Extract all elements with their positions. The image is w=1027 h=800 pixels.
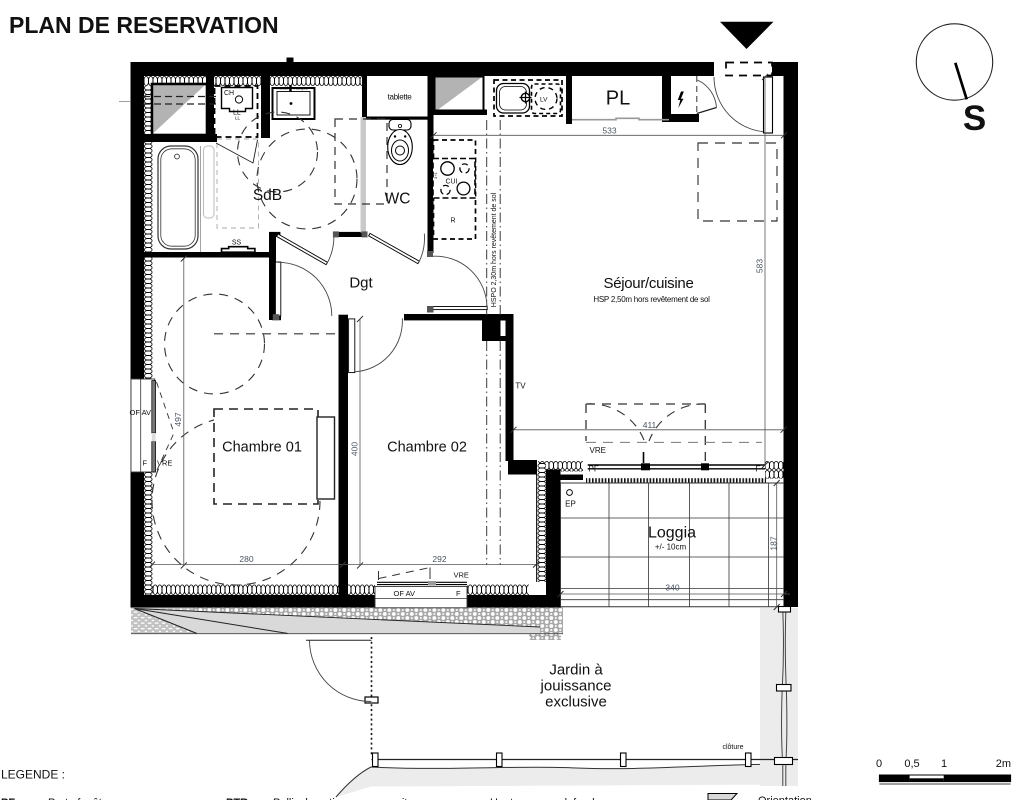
svg-text:0: 0 (876, 758, 882, 770)
svg-text:400: 400 (350, 442, 360, 456)
svg-text:VRE: VRE (590, 446, 606, 455)
svg-text:EP: EP (565, 500, 576, 509)
svg-text:Chambre 02: Chambre 02 (387, 440, 467, 456)
svg-text:WC: WC (385, 191, 411, 208)
svg-text:411: 411 (643, 420, 657, 430)
svg-text:clôture: clôture (722, 744, 743, 751)
svg-text:F: F (456, 589, 461, 598)
svg-text:Dgt: Dgt (349, 275, 373, 292)
svg-text:Séjour/cuisine: Séjour/cuisine (603, 275, 693, 292)
svg-text:PF: PF (589, 465, 599, 474)
svg-text:exclusive: exclusive (545, 694, 607, 711)
svg-text:2m: 2m (996, 758, 1011, 770)
svg-text:LV: LV (540, 97, 548, 104)
svg-text:Chambre 01: Chambre 01 (222, 440, 302, 456)
svg-text:187: 187 (769, 536, 779, 550)
svg-text:meuble+vasque: meuble+vasque (276, 86, 308, 91)
svg-text:0,5: 0,5 (904, 758, 919, 770)
svg-text:LL: LL (235, 116, 241, 121)
svg-text:Jardin à: Jardin à (549, 662, 603, 679)
svg-text:SS: SS (232, 240, 242, 247)
svg-text:jouissance: jouissance (540, 678, 612, 695)
svg-text:1: 1 (941, 758, 947, 770)
svg-text:SdB: SdB (253, 187, 282, 204)
svg-text:CH: CH (224, 90, 234, 97)
svg-text:533: 533 (602, 126, 616, 136)
svg-text:S: S (963, 99, 986, 138)
svg-text:+/- 10cm: +/- 10cm (655, 543, 687, 552)
svg-text:F: F (143, 459, 148, 468)
svg-text:OF AV: OF AV (130, 408, 152, 417)
svg-text:280: 280 (239, 554, 253, 564)
svg-text:TV: TV (515, 382, 526, 391)
svg-text:Orientation: Orientation (758, 795, 812, 800)
svg-text:R: R (451, 218, 456, 225)
svg-text:VRE: VRE (454, 571, 469, 580)
svg-text:PLAN DE RESERVATION: PLAN DE RESERVATION (9, 12, 279, 38)
svg-text:340: 340 (665, 583, 679, 593)
svg-text:VRE: VRE (157, 459, 172, 468)
svg-text:HSP 2,50m hors revêtement de s: HSP 2,50m hors revêtement de sol (593, 295, 710, 304)
svg-text:583: 583 (755, 259, 765, 273)
svg-text:tablette: tablette (388, 93, 413, 102)
svg-text:497: 497 (173, 412, 183, 426)
svg-text:PL: PL (606, 88, 630, 110)
svg-text:F: F (756, 465, 761, 474)
svg-text:OF AV: OF AV (394, 589, 416, 598)
svg-text:HSPO 2,30m hors revêtement de: HSPO 2,30m hors revêtement de sol (491, 192, 498, 307)
svg-text:3+1: 3+1 (433, 171, 438, 179)
svg-text:CUI: CUI (446, 179, 458, 186)
svg-text:292: 292 (432, 554, 446, 564)
svg-text:Loggia: Loggia (648, 525, 696, 542)
svg-text:LEGENDE :: LEGENDE : (1, 768, 65, 782)
